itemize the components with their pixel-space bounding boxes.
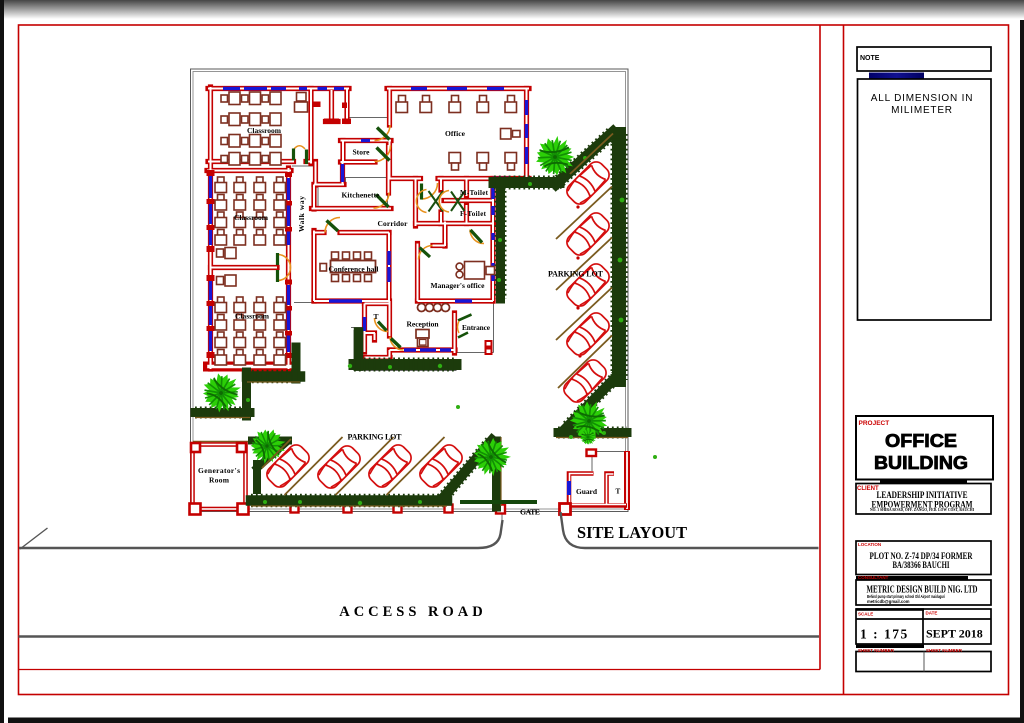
svg-text:Classroom: Classroom [234,213,269,222]
svg-text:Room: Room [209,476,230,485]
svg-text:NO. 1 SHIRA ROAD, OFF. ZANGO,: NO. 1 SHIRA ROAD, OFF. ZANGO, FED. LOW C… [870,507,974,512]
svg-text:LOCATION: LOCATION [858,542,881,547]
svg-text:BUILDING: BUILDING [874,453,968,473]
svg-text:ALL DIMENSION IN: ALL DIMENSION IN [871,93,973,104]
svg-text:PARKING LOT: PARKING LOT [548,270,604,279]
svg-text:T: T [373,312,378,321]
svg-text:PROJECT: PROJECT [859,420,890,427]
svg-text:T: T [616,488,621,496]
svg-text:Manager's office: Manager's office [431,281,486,290]
svg-text:SEPT 2018: SEPT 2018 [926,627,983,641]
svg-text:CONSULTANT: CONSULTANT [858,575,889,580]
svg-text:Classroom: Classroom [235,312,270,321]
svg-text:LEADERSHIP INITIATIVE: LEADERSHIP INITIATIVE [877,491,968,501]
svg-text:GATE: GATE [520,508,540,517]
svg-text:BA/38366 BAUCHI: BA/38366 BAUCHI [893,561,950,571]
svg-text:metricdb@gmail.com: metricdb@gmail.com [867,599,910,604]
svg-text:MILIMETER: MILIMETER [891,105,953,116]
svg-text:ACCESS ROAD: ACCESS ROAD [339,604,487,620]
svg-text:Conference hall: Conference hall [329,265,379,274]
svg-text:Guard: Guard [576,487,598,496]
svg-text:Store: Store [353,148,371,157]
svg-text:SHEET NUMBER: SHEET NUMBER [858,648,895,653]
svg-text:Entrance: Entrance [462,323,491,332]
svg-text:PARKING LOT: PARKING LOT [348,433,403,442]
svg-text:SCALE: SCALE [858,612,873,617]
svg-text:M-Toilet: M-Toilet [460,189,489,197]
svg-text:F-Toilet: F-Toilet [460,210,487,218]
svg-text:Reception: Reception [407,320,440,329]
svg-text:NOTE: NOTE [860,55,880,62]
svg-text:SITE LAYOUT: SITE LAYOUT [577,523,688,542]
svg-text:Office: Office [445,129,466,138]
svg-text:SHEET NUMBER: SHEET NUMBER [926,648,963,653]
svg-text:Kitchenette: Kitchenette [342,191,381,200]
svg-text:Classroom: Classroom [247,126,282,135]
svg-text:DATE: DATE [926,611,938,616]
svg-text:Generator's: Generator's [198,466,240,475]
svg-text:Corridor: Corridor [378,219,409,228]
svg-text:Walk way: Walk way [297,196,306,232]
svg-text:OFFICE: OFFICE [885,431,957,451]
svg-text:1 : 175: 1 : 175 [860,627,909,642]
